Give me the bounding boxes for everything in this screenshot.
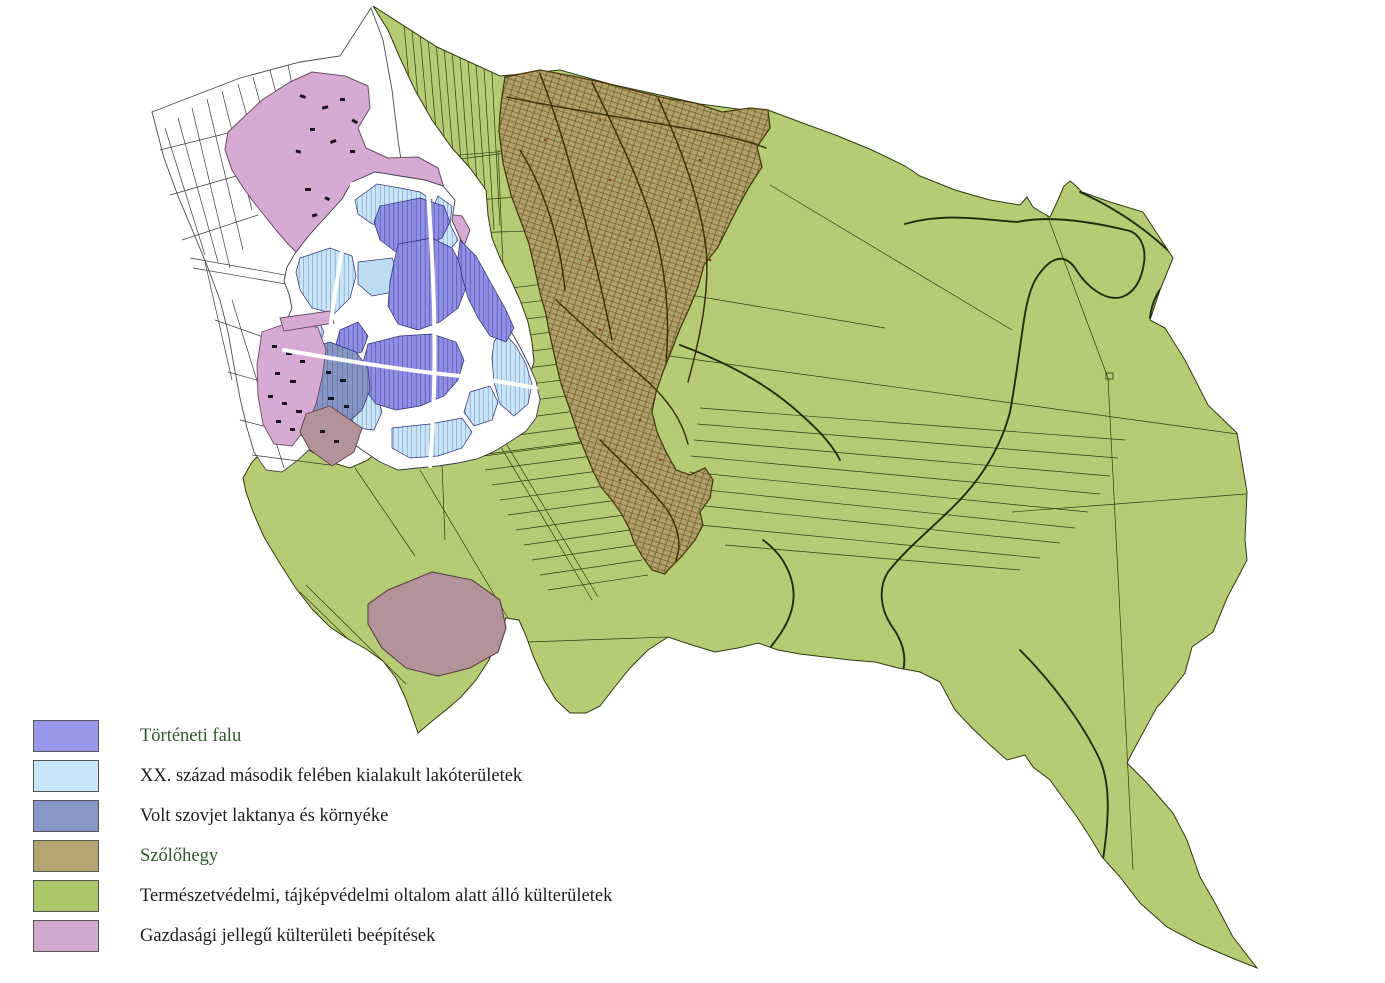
legend-item-protected-outskirts: Természetvédelmi, tájképvédelmi oltalom … bbox=[33, 876, 733, 916]
legend-label-historic-village: Történeti falu bbox=[140, 727, 241, 746]
legend-item-vineyard-hill: Szőlőhegy bbox=[33, 836, 733, 876]
legend-swatch-soviet-barracks bbox=[33, 800, 99, 832]
legend-swatch-historic-village bbox=[33, 720, 99, 752]
legend-label-soviet-barracks: Volt szovjet laktanya és környéke bbox=[140, 807, 388, 826]
legend-label-vineyard-hill: Szőlőhegy bbox=[140, 847, 218, 866]
legend-label-economic-developments: Gazdasági jellegű külterületi beépítések bbox=[140, 927, 435, 946]
legend-label-modern-residential: XX. század második felében kialakult lak… bbox=[140, 767, 522, 786]
legend-item-historic-village: Történeti falu bbox=[33, 716, 733, 756]
legend-item-soviet-barracks: Volt szovjet laktanya és környéke bbox=[33, 796, 733, 836]
legend-swatch-economic-developments bbox=[33, 920, 99, 952]
legend-swatch-protected-outskirts bbox=[33, 880, 99, 912]
map-legend: Történeti falu XX. század második felébe… bbox=[33, 716, 733, 956]
legend-swatch-modern-residential bbox=[33, 760, 99, 792]
land-use-map-page: Történeti falu XX. század második felébe… bbox=[0, 0, 1385, 983]
legend-item-modern-residential: XX. század második felében kialakult lak… bbox=[33, 756, 733, 796]
legend-label-protected-outskirts: Természetvédelmi, tájképvédelmi oltalom … bbox=[140, 887, 612, 906]
legend-item-economic-developments: Gazdasági jellegű külterületi beépítések bbox=[33, 916, 733, 956]
legend-swatch-vineyard-hill bbox=[33, 840, 99, 872]
